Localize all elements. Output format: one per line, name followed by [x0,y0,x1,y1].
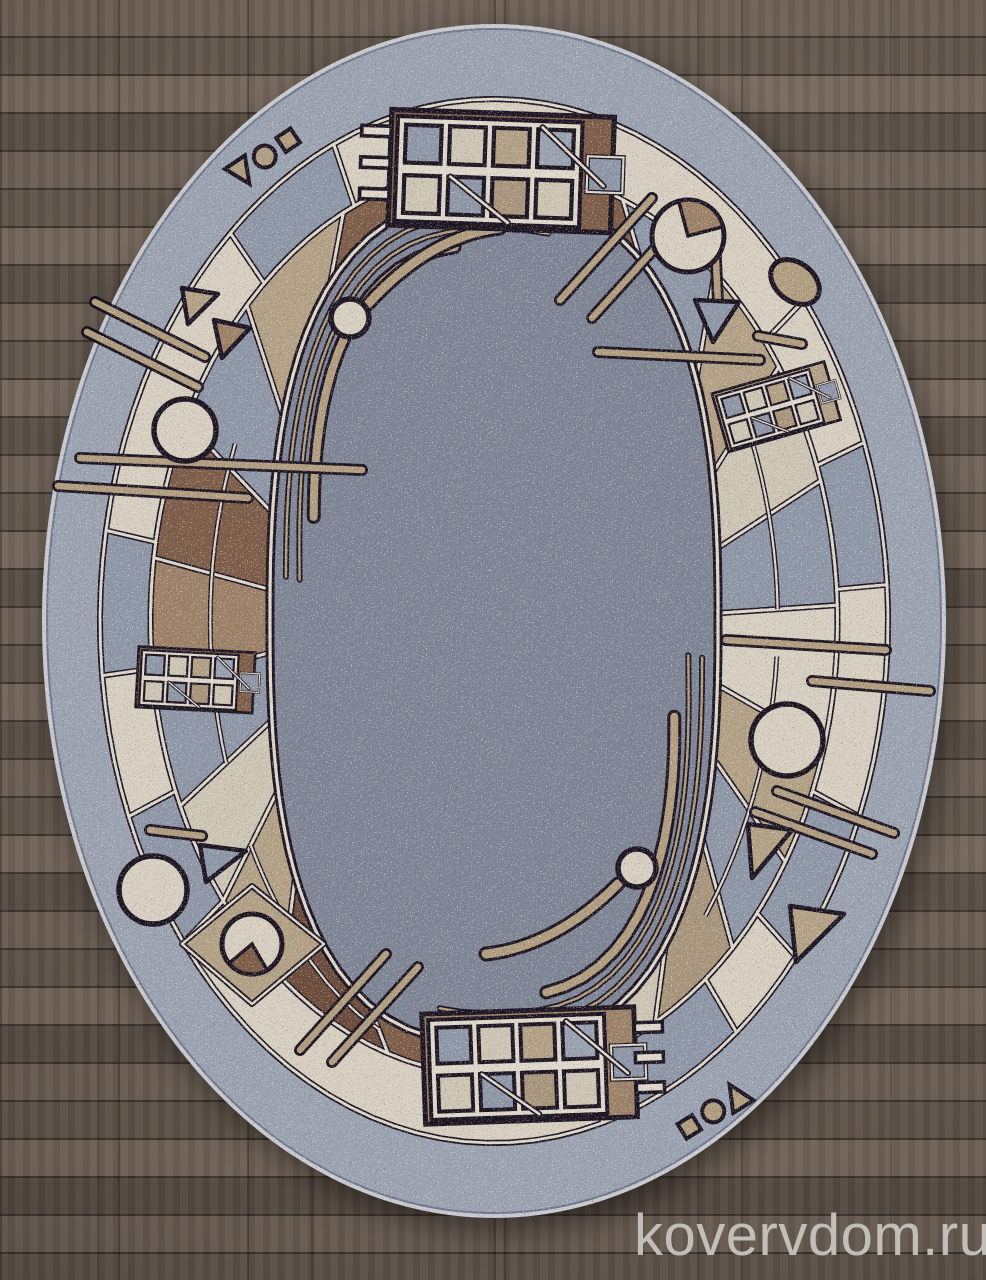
rug-product-photo: kovervdom.ru [0,0,986,1280]
watermark-text: kovervdom.ru [634,1202,986,1269]
oval-rug [0,0,986,1280]
